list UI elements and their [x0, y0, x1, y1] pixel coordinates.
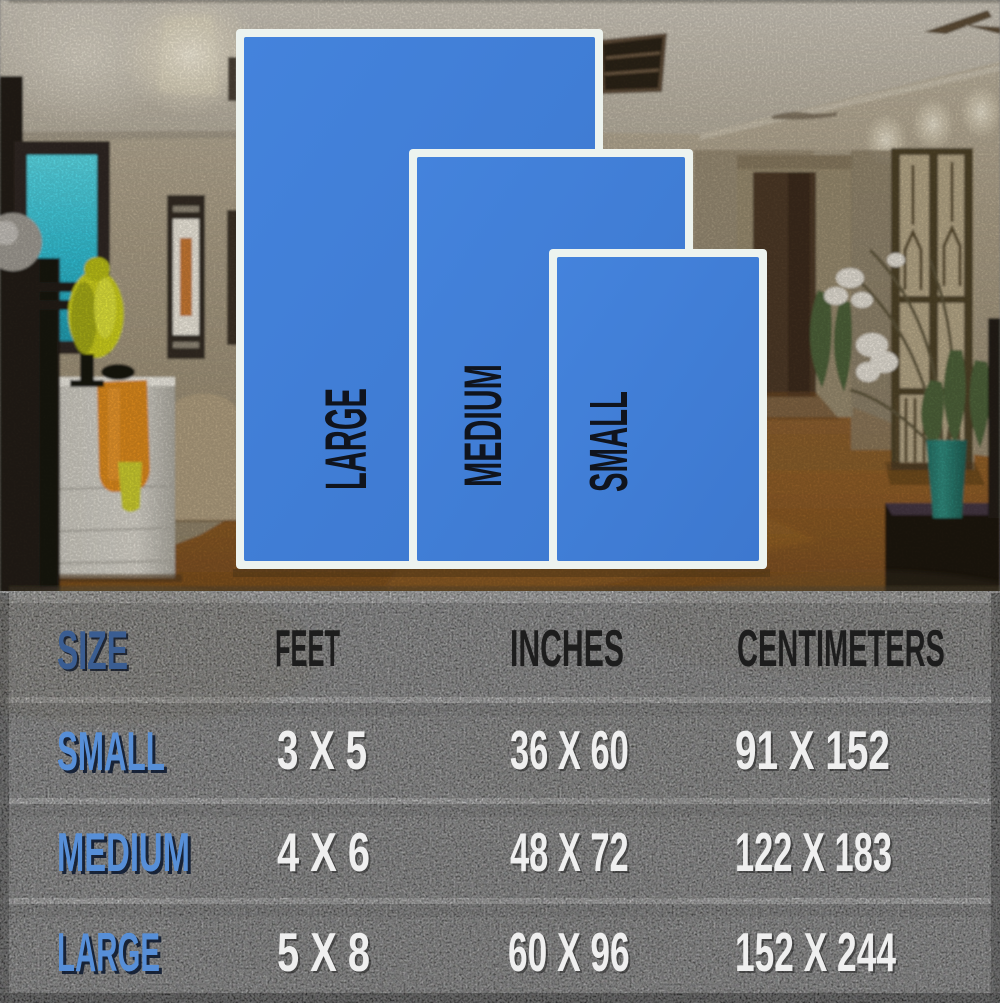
svg-text:5 X 8: 5 X 8: [277, 923, 370, 984]
svg-text:4 X 6: 4 X 6: [277, 823, 370, 884]
svg-text:LARGE: LARGE: [57, 922, 160, 983]
svg-text:SMALL: SMALL: [580, 391, 640, 492]
svg-text:SIZE: SIZE: [57, 619, 128, 681]
svg-text:INCHES: INCHES: [510, 621, 624, 678]
svg-text:3 X 5: 3 X 5: [277, 720, 367, 781]
svg-text:LARGE: LARGE: [313, 388, 379, 490]
svg-text:MEDIUM: MEDIUM: [57, 821, 190, 883]
svg-text:48 X 72: 48 X 72: [510, 821, 629, 883]
svg-text:MEDIUM: MEDIUM: [454, 364, 513, 487]
svg-text:CENTIMETERS: CENTIMETERS: [737, 619, 945, 677]
svg-text:152 X 244: 152 X 244: [735, 921, 896, 983]
svg-text:60 X 96: 60 X 96: [508, 921, 630, 983]
svg-text:36 X 60: 36 X 60: [510, 719, 629, 781]
svg-text:122 X 183: 122 X 183: [735, 821, 892, 883]
svg-text:FEET: FEET: [275, 619, 340, 677]
svg-text:91 X 152: 91 X 152: [735, 720, 890, 781]
svg-text:SMALL: SMALL: [57, 721, 165, 782]
